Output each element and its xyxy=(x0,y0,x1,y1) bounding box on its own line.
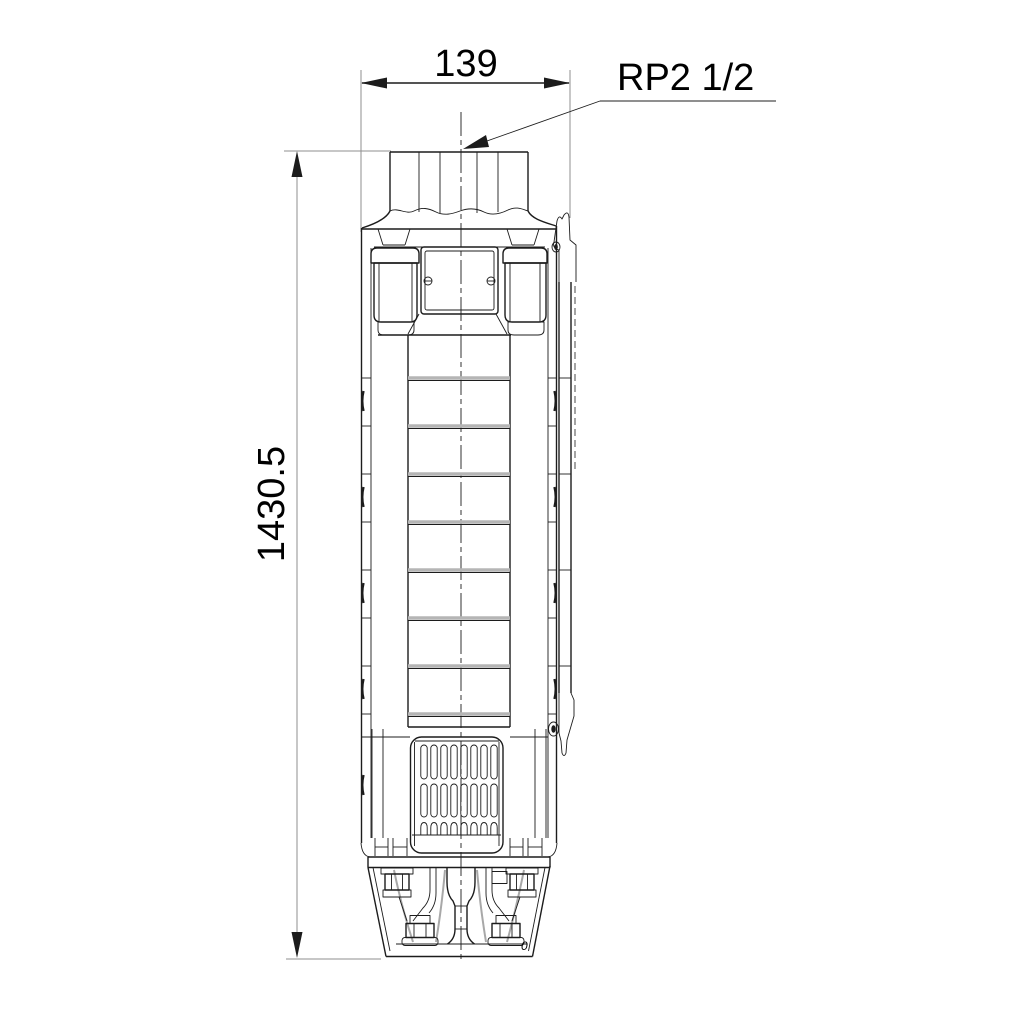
nameplate xyxy=(421,247,498,314)
arrowhead-left xyxy=(361,78,387,89)
base-bolt-right xyxy=(492,868,538,921)
strap-right xyxy=(548,248,557,838)
technical-drawing-canvas: 139 1430.5 RP2 1/2 xyxy=(0,0,1024,1024)
base-foot-bolt-left xyxy=(402,916,438,946)
width-dimension-value: 139 xyxy=(434,43,497,85)
leader-line xyxy=(470,101,600,147)
cable-clamp-right xyxy=(503,248,547,335)
pump-outline: 0 xyxy=(361,152,576,957)
base-foot-bolt-right xyxy=(488,916,524,946)
chamber-stage-joints xyxy=(408,378,510,727)
arrowhead-right xyxy=(544,78,570,89)
arrowhead-bottom xyxy=(292,932,303,958)
cable-clamp-left xyxy=(371,248,419,335)
base-mark: 0 xyxy=(521,939,528,953)
height-dimension-value: 1430.5 xyxy=(251,446,293,562)
suction-interconnector xyxy=(361,729,557,857)
motor-bracket-base: 0 xyxy=(368,857,550,957)
suction-strainer xyxy=(411,737,504,853)
cable-guard xyxy=(549,213,577,756)
base-bolt-left xyxy=(381,868,413,921)
pump-dimensional-drawing: 139 1430.5 RP2 1/2 xyxy=(0,0,1024,1024)
strap-left xyxy=(361,248,371,838)
connection-label: RP2 1/2 xyxy=(617,57,754,99)
threaded-connection xyxy=(362,152,556,228)
connection-callout: RP2 1/2 xyxy=(463,57,776,149)
strainer-slots xyxy=(421,745,497,835)
width-dimension: 139 xyxy=(361,43,570,232)
height-dimension: 1430.5 xyxy=(251,151,391,959)
valve-casing xyxy=(362,226,557,843)
arrowhead-top xyxy=(292,151,303,177)
leader-arrowhead xyxy=(463,135,489,149)
